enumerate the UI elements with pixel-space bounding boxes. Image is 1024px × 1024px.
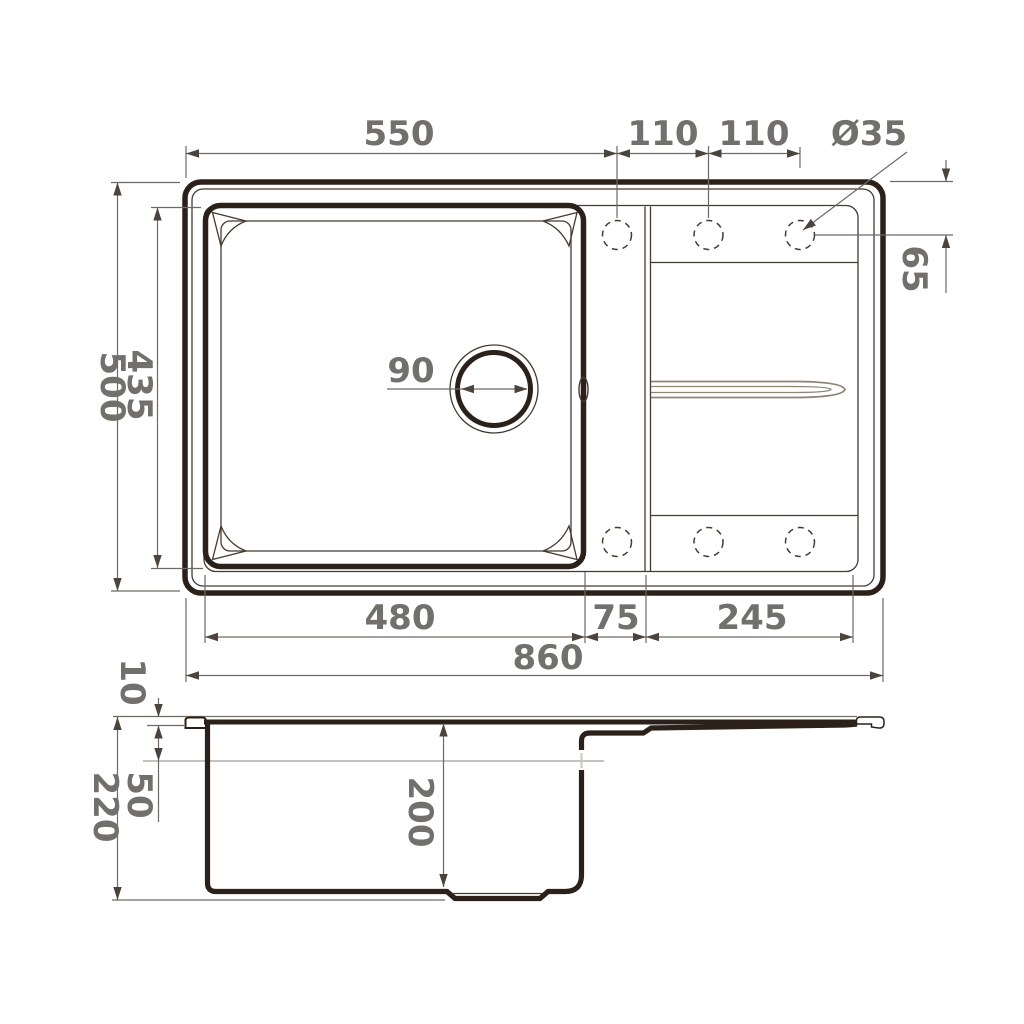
dim-arrow xyxy=(604,149,617,157)
drainboard-section-profile xyxy=(582,724,858,750)
dim-arrow xyxy=(113,887,121,900)
dim-480: 480 xyxy=(365,598,436,638)
bowl-corner-wedge-br xyxy=(543,526,577,560)
rim-outer-inner-line xyxy=(192,189,874,586)
dim-65: 65 xyxy=(894,245,934,292)
dim-arrow xyxy=(870,671,883,679)
dim-arrow xyxy=(646,633,659,641)
top-chain-dimension-lines xyxy=(186,146,907,230)
tap-hole-5 xyxy=(694,528,723,557)
dim-110-b: 110 xyxy=(719,114,790,154)
drainboard-groove-outer xyxy=(651,382,845,398)
dim-245: 245 xyxy=(717,598,788,638)
bowl-corner-wedge-tr xyxy=(543,213,577,247)
tap-hole-2 xyxy=(694,221,723,250)
tap-hole-1 xyxy=(603,221,632,250)
dim-arrow xyxy=(113,717,121,730)
dim-200: 200 xyxy=(400,777,440,848)
dim-arrow xyxy=(461,385,474,393)
sink-outer-edge xyxy=(185,182,883,593)
dim-hole-diameter: Ø35 xyxy=(831,114,907,154)
dim-arrow xyxy=(113,578,121,591)
drainboard-groove-inner xyxy=(651,387,831,393)
dim-arrow xyxy=(439,874,447,887)
right-rim-lip xyxy=(857,717,885,728)
dim-arrow xyxy=(186,149,199,157)
sink-technical-drawing: 550 110 110 Ø35 65 500 435 90 480 75 245 xyxy=(0,0,1024,1024)
side-dimension-lines xyxy=(112,698,445,900)
side-view xyxy=(143,717,884,899)
dim-arrow xyxy=(942,235,950,248)
top-view xyxy=(185,182,883,593)
bowl-corner-wedge-bl xyxy=(213,526,247,560)
dim-arrow xyxy=(153,555,161,568)
dim-435: 435 xyxy=(119,350,159,421)
left-rim-lip xyxy=(186,718,207,729)
dim-10: 10 xyxy=(112,658,152,705)
dim-arrow xyxy=(515,385,528,393)
dim-75: 75 xyxy=(592,598,639,638)
dim-220: 220 xyxy=(85,772,125,843)
dim-arrow xyxy=(840,633,853,641)
dim-860: 860 xyxy=(513,638,584,678)
tap-hole-4 xyxy=(603,528,632,557)
bowl-section-profile xyxy=(208,723,582,899)
tap-hole-6 xyxy=(786,528,815,557)
dim-arrow xyxy=(154,704,162,717)
dim-550: 550 xyxy=(364,114,435,154)
dim-arrow xyxy=(113,183,121,196)
dim-arrow xyxy=(439,724,447,737)
drainboard-divider xyxy=(645,207,651,572)
drawing-page: 550 110 110 Ø35 65 500 435 90 480 75 245 xyxy=(0,0,1024,1024)
side-view-dimensions: 10 50 220 200 xyxy=(85,658,448,900)
dim-arrow xyxy=(942,169,950,182)
dim-arrow xyxy=(154,726,162,739)
dim-110-a: 110 xyxy=(628,114,699,154)
dim-arrow xyxy=(153,208,161,221)
dim-arrow xyxy=(205,633,218,641)
dim-90: 90 xyxy=(387,351,434,391)
dim-arrow xyxy=(186,671,199,679)
bowl-corner-wedge-tl xyxy=(213,213,247,247)
dim-arrow xyxy=(154,748,162,761)
